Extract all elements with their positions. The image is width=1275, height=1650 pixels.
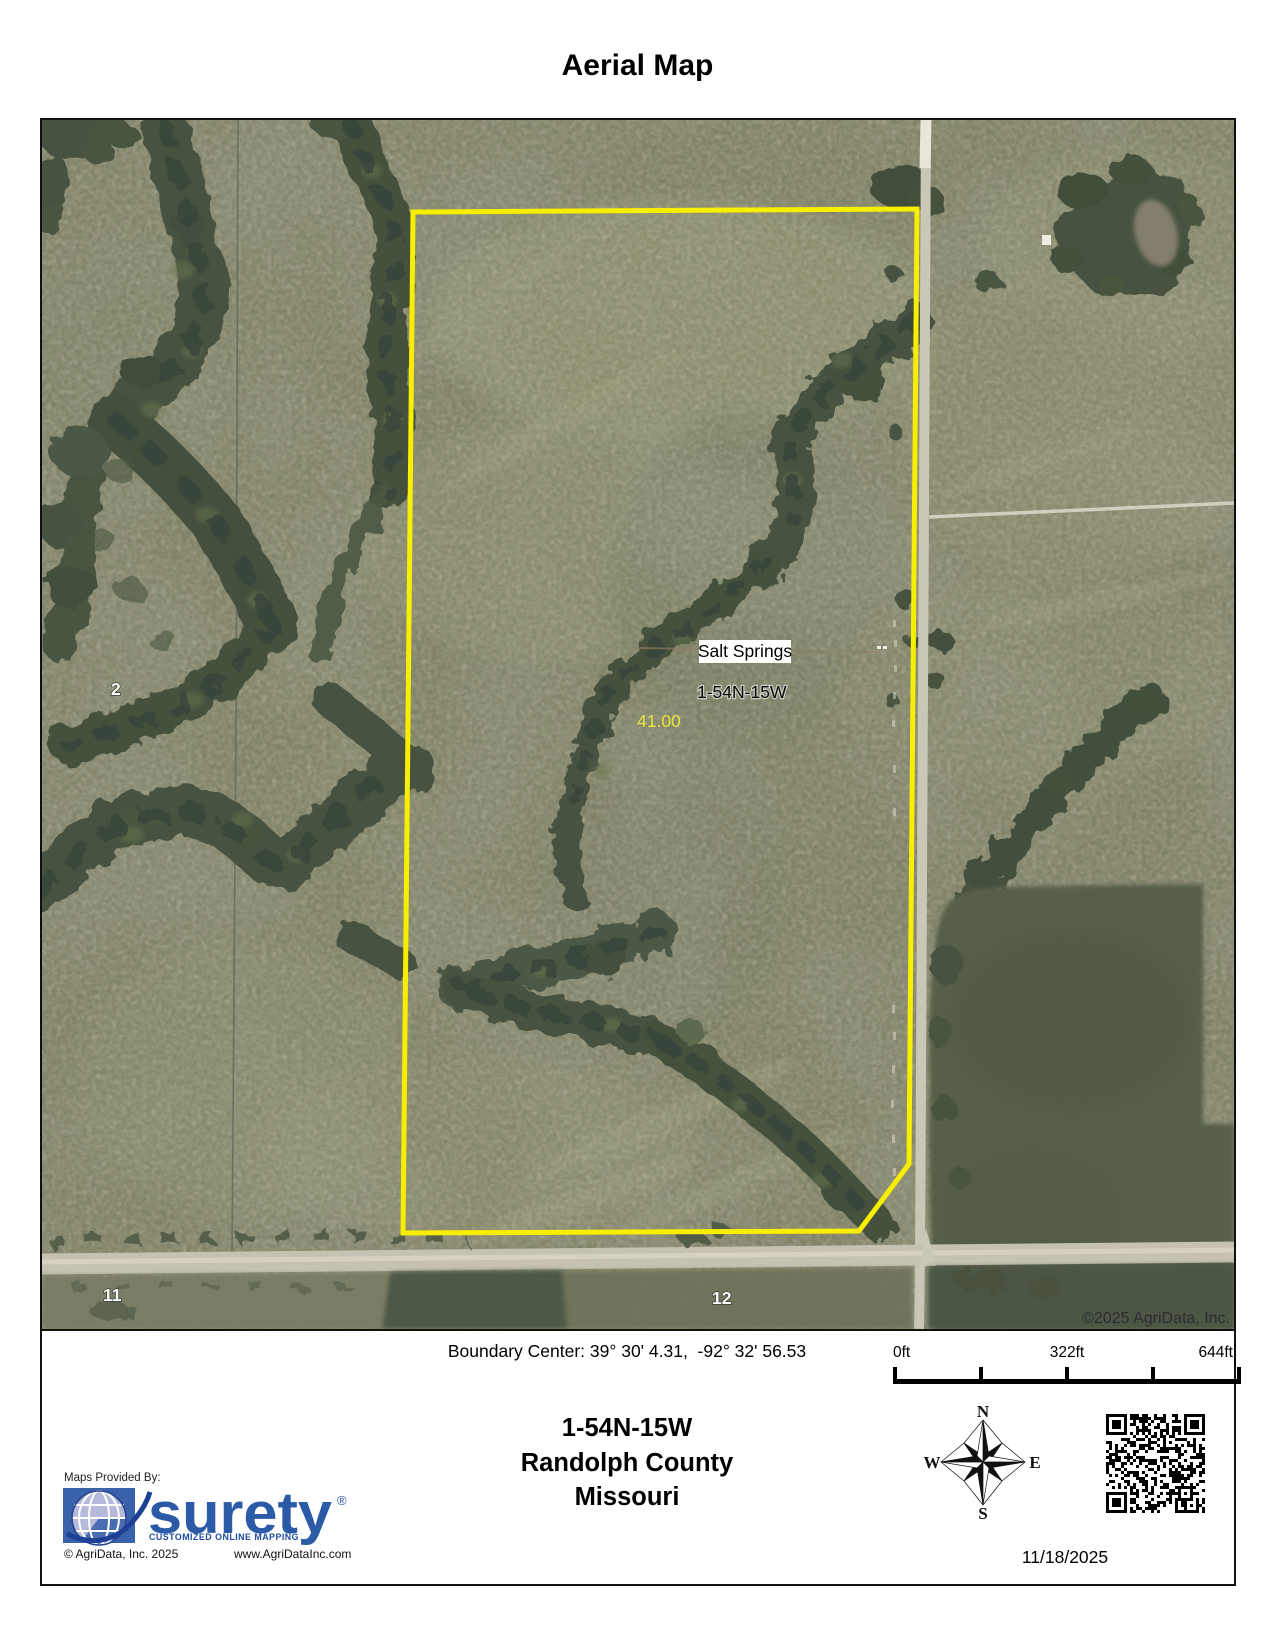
svg-text:Salt Springs: Salt Springs	[698, 641, 793, 661]
svg-text:S: S	[978, 1504, 987, 1523]
svg-text:E: E	[1029, 1453, 1040, 1472]
svg-text:®: ®	[337, 1493, 347, 1508]
svg-text:CUSTOMIZED ONLINE MAPPING: CUSTOMIZED ONLINE MAPPING	[149, 1532, 299, 1542]
svg-text:2: 2	[111, 679, 121, 699]
svg-text:1-54N-15W: 1-54N-15W	[697, 682, 787, 702]
svg-text:W: W	[924, 1453, 941, 1472]
svg-text:41.00: 41.00	[637, 711, 681, 731]
svg-text:©2025 AgriData, Inc.: ©2025 AgriData, Inc.	[1082, 1310, 1230, 1327]
svg-text:12: 12	[712, 1288, 732, 1308]
svg-text:11: 11	[103, 1285, 122, 1305]
svg-text:N: N	[977, 1402, 990, 1421]
